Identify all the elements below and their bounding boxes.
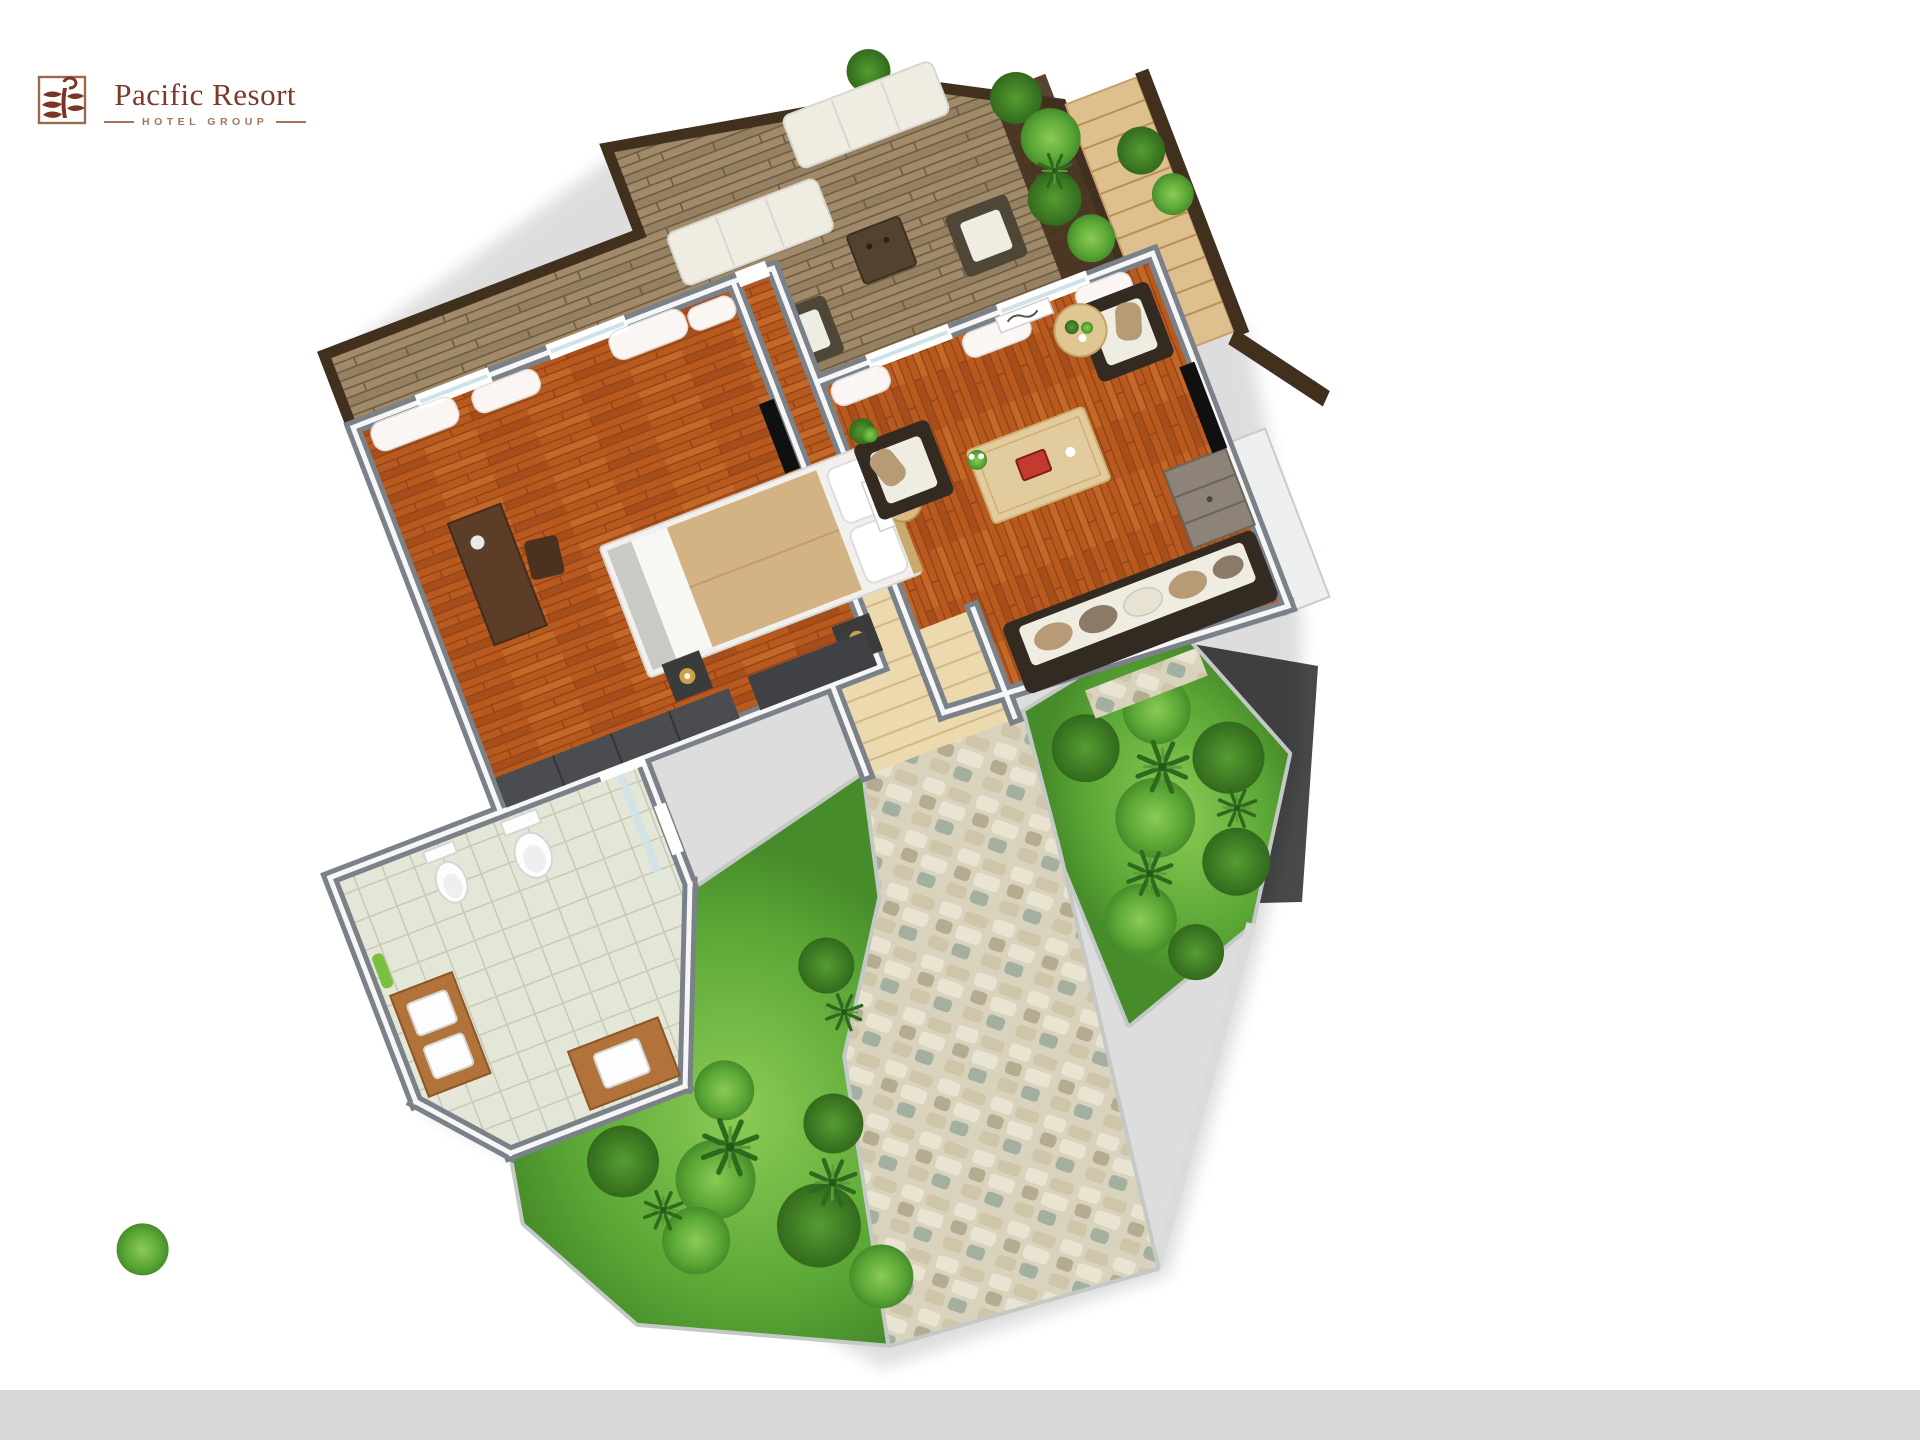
page: Pacific Resort HOTEL GROUP — [0, 0, 1920, 1440]
floor-plan-render — [0, 0, 1920, 1440]
footer-bar — [0, 1390, 1920, 1440]
rotated-plan — [0, 0, 1605, 1440]
